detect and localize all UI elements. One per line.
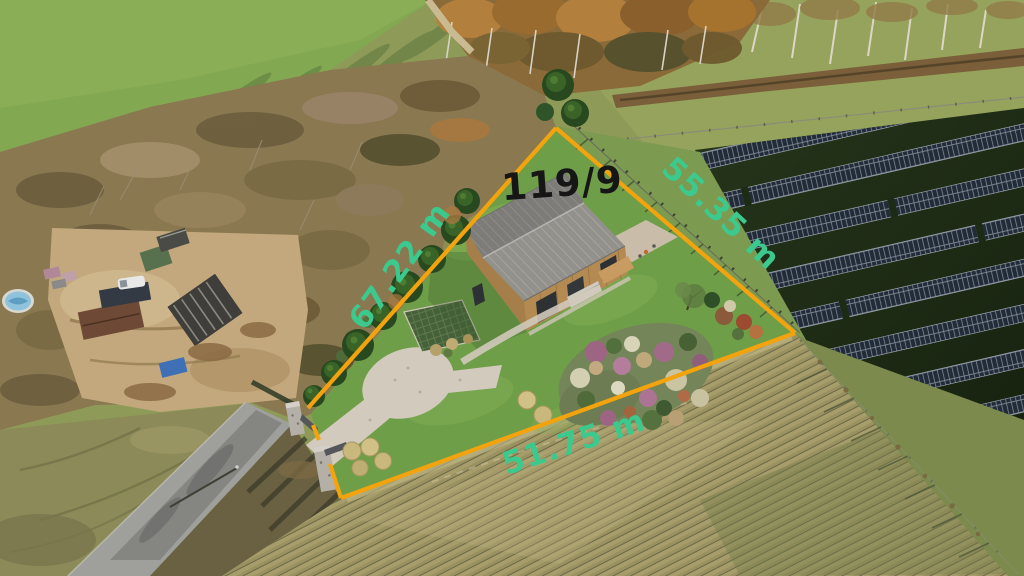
utility-pole (235, 465, 239, 469)
parcel-number-label: 119/9 (500, 158, 624, 209)
round-pool (2, 289, 34, 313)
aerial-photo-parcel-listing: 119/9 67.22 m 55.35 m 51.75 m (0, 0, 1024, 576)
